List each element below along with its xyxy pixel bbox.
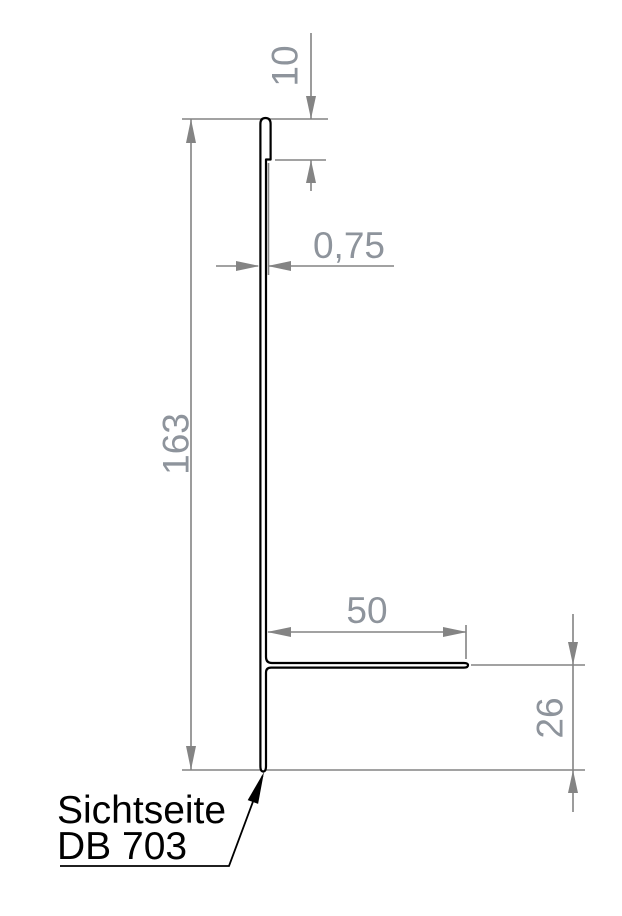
dimension-hem-height: 10: [265, 33, 327, 191]
arrowhead-right-icon: [236, 261, 260, 271]
arrowhead-up-icon: [186, 119, 196, 143]
dim-label-flange-width: 50: [346, 590, 387, 631]
arrowhead-down-icon: [306, 96, 316, 119]
dimension-thickness: 0,75: [216, 163, 394, 275]
technical-drawing: 163 10 0,75 50: [0, 0, 622, 916]
dim-label-bottom-offset: 26: [530, 697, 571, 738]
arrowhead-down-icon: [568, 642, 578, 665]
arrowhead-up-icon: [568, 770, 578, 793]
arrowhead-left-icon: [268, 261, 292, 271]
dimension-flange-width: 50: [267, 590, 467, 659]
arrowhead-right-icon: [443, 627, 467, 637]
dim-label-profile-height: 163: [156, 413, 197, 475]
arrowhead-up-icon: [306, 160, 316, 183]
annotation-line2: DB 703: [57, 825, 187, 868]
arrowhead-down-icon: [186, 746, 196, 770]
leader-arrowhead-icon: [248, 772, 264, 804]
sheet-profile-outline: [260, 118, 468, 772]
dim-label-thickness: 0,75: [313, 225, 385, 266]
dimension-profile-height: 163: [156, 119, 586, 770]
dimension-bottom-offset: 26: [471, 614, 585, 812]
leader-annotation: Sichtseite DB 703: [57, 772, 264, 868]
dim-label-hem-height: 10: [265, 45, 306, 86]
drawing-canvas: 163 10 0,75 50: [0, 0, 622, 916]
arrowhead-left-icon: [267, 627, 291, 637]
